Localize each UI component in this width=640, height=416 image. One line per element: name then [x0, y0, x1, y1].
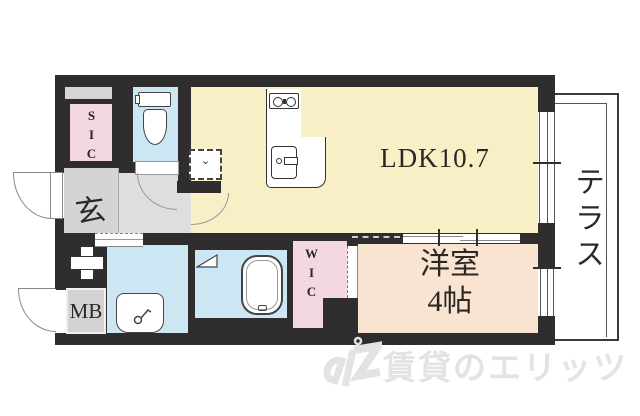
kitchen-counter-ext [300, 137, 326, 188]
sliding-door-icon [403, 234, 520, 243]
bathtub-icon [241, 255, 283, 315]
appliance-mark: ⌄ [201, 154, 210, 167]
watermark-text: 賃貸のエリッツ [383, 341, 628, 389]
kitchen-faucet-handle [284, 157, 298, 165]
window-icon-ldk [539, 112, 555, 223]
terrace-label: テラス [564, 166, 608, 274]
genkan-step-line [118, 168, 119, 233]
stove-icon [269, 93, 299, 109]
meter-box-label: MB [70, 299, 103, 324]
washbasin-icon [116, 293, 164, 333]
wall-door-header [177, 181, 221, 193]
terrace-railing-line-top [555, 103, 607, 104]
kitchen-faucet-dot [276, 158, 282, 164]
genkan-label: 玄 [72, 184, 108, 232]
floor-plan: ⌄ MB LDK10.7 洋室 4帖 テラス SIC WIC 玄 [0, 0, 640, 416]
wall-right-top [538, 75, 555, 112]
sic-label: SIC [83, 108, 99, 165]
toilet-icon [138, 92, 171, 107]
wall-right-mid [538, 223, 555, 267]
window-tick-western [533, 267, 561, 269]
sliding-door-tick-right [476, 229, 478, 246]
sliding-door-tick-left [438, 229, 440, 246]
washroom-sliding-door [95, 233, 143, 247]
window-tick-ldk [533, 162, 561, 164]
meter-box: MB [66, 288, 106, 334]
elitz-logo-icon [320, 334, 382, 392]
entrance-door-panel [50, 172, 63, 219]
folding-door-icon [196, 253, 220, 271]
room-wic [293, 241, 347, 298]
shelf-hatch-dashes [352, 236, 400, 238]
room-label-western: 洋室 4帖 [395, 246, 505, 320]
pipe-shaft-icon [70, 246, 104, 280]
wic-label: WIC [303, 246, 319, 303]
western-label-line1: 洋室 [395, 246, 505, 283]
wic-door [347, 246, 358, 298]
appliance-space-icon: ⌄ [189, 149, 222, 180]
window-icon-western [540, 267, 554, 316]
room-label-ldk: LDK10.7 [360, 143, 510, 174]
western-label-line2: 4帖 [395, 283, 505, 320]
sic-shelf [65, 87, 112, 99]
door-swing-arc-mb [18, 289, 56, 332]
door-swing-arc-entrance [13, 173, 52, 219]
toilet-flush-button [135, 95, 140, 104]
